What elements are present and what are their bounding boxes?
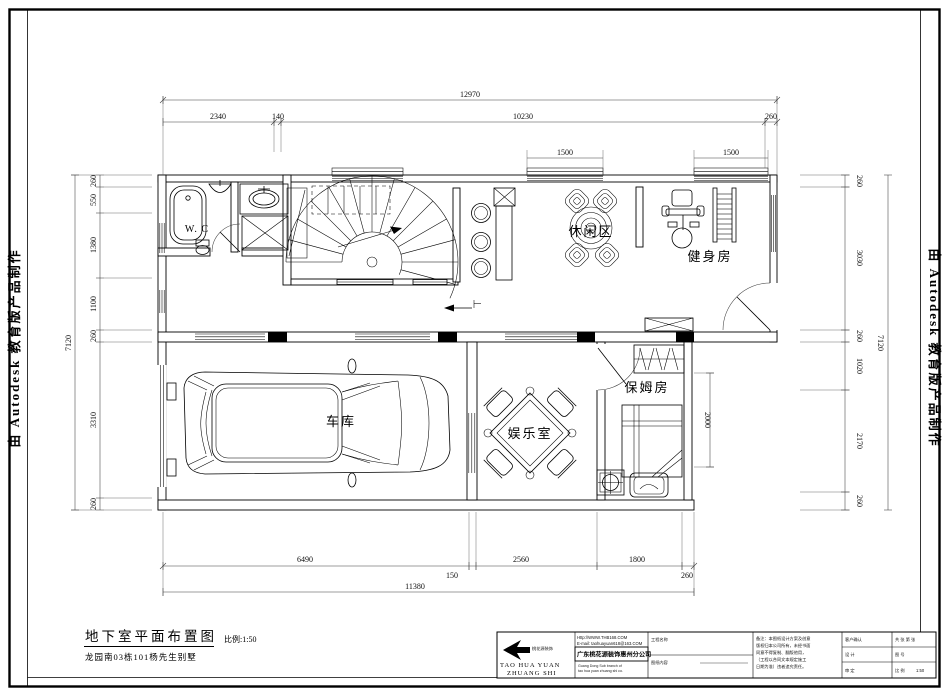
title-block: 桃花源装饰 TAO HUA YUAN ZHUANG SHI Http://WWW… [497,632,936,678]
svg-text:260: 260 [765,112,777,121]
dimensions-bottom: 6490 150 2560 1800 260 11380 [160,512,697,596]
svg-text:2000: 2000 [703,412,712,428]
company-sub-en2: tao hua yuan zhuang shi co. [578,669,623,673]
field-design-label: 设 计 [845,651,855,658]
field-sheets-label: 共 张 第 张 [895,636,916,643]
notes-cell: 备注：本图纸设计方案及创意 版权归本公司所有，未经书面 同意不得复制、翻版他用，… [756,635,810,670]
svg-text:1020: 1020 [855,358,864,374]
room-label-leisure: 休闲区 [568,224,613,239]
floor-plan-drawing: 由 Autodesk 教育版产品制作 由 Autodesk 教育版产品制作 [0,0,949,696]
svg-text:版权归本公司所有，未经书面: 版权归本公司所有，未经书面 [756,642,810,649]
svg-text:2340: 2340 [210,112,226,121]
svg-text:260: 260 [855,330,864,342]
cad-plot-page: 由 Autodesk 教育版产品制作 由 Autodesk 教育版产品制作 [0,0,949,696]
autodesk-stamp-left: 由 Autodesk 教育版产品制作 [7,248,22,447]
company-website: Http://WWW.THB168.COM [577,635,628,640]
svg-text:1380: 1380 [89,237,98,253]
svg-text:260: 260 [89,330,98,342]
svg-text:10230: 10230 [513,112,533,121]
svg-text:7120: 7120 [876,335,885,351]
scale-value: 1:50 [916,668,925,673]
field-approve-label: 审 定 [845,667,855,674]
field-project-label: 工程名称 [651,636,668,643]
dimension-nanny-depth: 2000 [694,373,714,467]
svg-text:（工程以合同文本规定施工: （工程以合同文本规定施工 [756,656,806,663]
bathroom-fixtures [170,180,288,255]
svg-text:260: 260 [89,498,98,510]
project-name: 龙园南03栋101杨先生别墅 [85,652,197,662]
room-label-garage: 车库 [326,414,356,429]
svg-text:12970: 12970 [460,90,480,99]
company-email: E-mail: taohuayuan618@163.COM [577,641,643,646]
svg-text:1500: 1500 [557,148,573,157]
logo-caption: 桃花源装饰 [532,645,553,652]
entry-arrow [444,300,481,312]
svg-text:260: 260 [855,175,864,187]
svg-text:7120: 7120 [64,335,73,351]
drawing-scale: 比例:1:50 [224,634,256,644]
room-label-gym: 健身房 [687,249,732,264]
autodesk-stamp-right: 由 Autodesk 教育版产品制作 [927,248,942,447]
field-scale-label: 比 例 [895,667,905,674]
room-label-nanny: 保姆房 [624,380,669,395]
dimensions-top: 12970 2340 140 10230 260 1500 1500 [160,90,780,176]
room-label-entertainment: 娱乐室 [507,426,552,441]
car-top-view [184,359,450,487]
field-content-label: 图纸内容 [651,659,668,666]
svg-text:2170: 2170 [855,433,864,449]
field-customer-label: 客户确认 [845,636,863,643]
room-label-wc: W. C [185,224,209,235]
dimensions-left: 260 550 1380 1100 260 3310 260 7120 [64,175,152,510]
svg-text:日期为准）违者追究责任。: 日期为准）违者追究责任。 [756,663,806,670]
svg-text:3310: 3310 [89,412,98,428]
svg-text:3030: 3030 [855,250,864,266]
svg-text:140: 140 [272,112,284,121]
nanny-room-fixtures [597,345,684,497]
svg-text:260: 260 [681,571,693,580]
drawing-title: 地下室平面布置图 [85,628,217,644]
leisure-furniture [472,187,694,331]
svg-text:1500: 1500 [723,148,739,157]
company-en-line2: ZHUANG SHI [507,670,557,677]
company-en-line1: TAO HUA YUAN [500,662,560,669]
svg-text:1100: 1100 [89,296,98,312]
dimensions-right: 260 3030 260 1020 2170 260 7120 [800,175,892,510]
svg-text:150: 150 [446,571,458,580]
svg-text:550: 550 [89,194,98,206]
svg-text:6490: 6490 [297,555,313,564]
svg-text:11380: 11380 [405,582,425,591]
svg-text:1800: 1800 [629,555,645,564]
svg-text:备注：本图纸设计方案及创意: 备注：本图纸设计方案及创意 [756,635,810,642]
svg-text:260: 260 [89,175,98,187]
company-name-cn: 广东桃花源装饰惠州分公司 [577,651,651,659]
company-sub-en1: Guang Dong Sub branch of [578,664,622,668]
walls [158,175,777,510]
drawing-title-block: 地下室平面布置图 比例:1:50 龙园南03栋101杨先生别墅 [84,628,256,662]
svg-text:2560: 2560 [513,555,529,564]
svg-text:同意不得复制、翻版他用，: 同意不得复制、翻版他用， [756,649,806,656]
svg-text:260: 260 [855,495,864,507]
